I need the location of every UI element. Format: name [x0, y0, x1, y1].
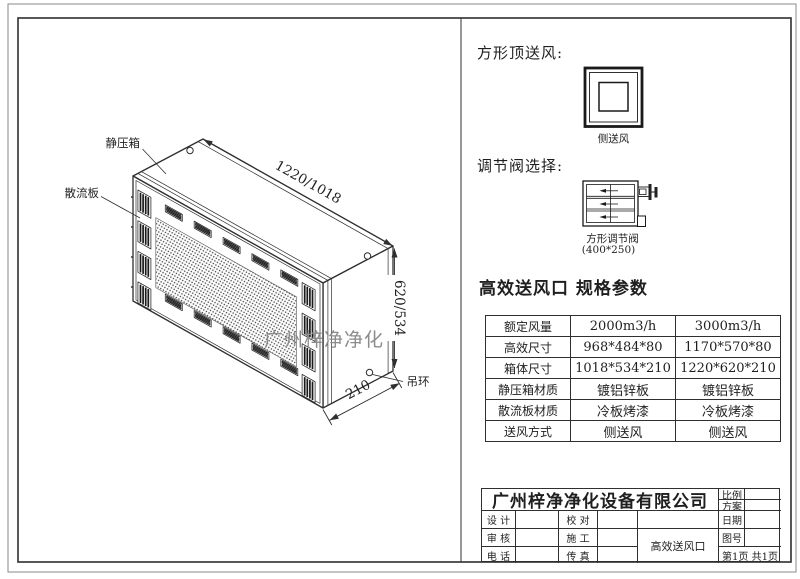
damper-valve-diagram	[583, 181, 658, 227]
audit-label: 审 核	[482, 529, 516, 547]
caption-valve-size: (400*250)	[566, 244, 651, 256]
dim-text-height: 620/534	[391, 280, 407, 336]
valve-handle	[638, 184, 658, 200]
table-row: 静压箱材质 镀铝锌板 镀铝锌板	[486, 379, 781, 400]
drawing-sheet: 广州梓净净化 1220/1018 620/534 210 静压箱 散流板 吊环	[0, 0, 800, 579]
spec-value: 镀铝锌板	[571, 379, 676, 400]
fax-label: 传 真	[559, 547, 598, 563]
label-diffuser-plate: 散流板	[65, 186, 100, 200]
design-label: 设 计	[482, 511, 516, 529]
table-row: 散流板材质 冷板烤漆 冷板烤漆	[486, 400, 781, 421]
spec-value: 968*484*80	[571, 337, 676, 358]
heading-spec: 高效送风口 规格参数	[479, 274, 648, 299]
spec-value: 侧送风	[676, 421, 781, 442]
construct-value	[598, 529, 638, 547]
construct-label: 施 工	[559, 529, 598, 547]
table-row: 送风方式 侧送风 侧送风	[486, 421, 781, 442]
label-lifting-ring: 吊环	[407, 375, 430, 389]
drawing-no-value	[745, 529, 781, 547]
phone-value	[516, 547, 559, 563]
spec-label: 额定风量	[486, 316, 571, 337]
heading-top-supply: 方形顶送风:	[477, 42, 563, 63]
middle-empty-cell	[638, 511, 719, 529]
caption-side-supply: 侧送风	[585, 131, 642, 146]
spec-value: 镀铝锌板	[676, 379, 781, 400]
lifting-ring-back-right	[364, 253, 370, 259]
date-label: 日期	[719, 511, 745, 529]
spec-value: 侧送风	[571, 421, 676, 442]
audit-value	[516, 529, 559, 547]
title-block: 广州梓净净化设备有限公司 比例 方案 设 计 校 对 日期 审 核 施 工 高效…	[481, 488, 780, 562]
table-row: 箱体尺寸 1018*534*210 1220*620*210	[486, 358, 781, 379]
fax-value	[598, 547, 638, 563]
date-value	[745, 511, 781, 529]
isometric-box: 广州梓净净化	[131, 139, 393, 408]
plan-label: 方案	[719, 500, 745, 511]
check-label: 校 对	[559, 511, 598, 529]
table-row: 额定风量 2000m3/h 3000m3/h	[486, 316, 781, 337]
spec-value: 2000m3/h	[571, 316, 676, 337]
spec-value: 1018*534*210	[571, 358, 676, 379]
spec-value: 1220*620*210	[676, 358, 781, 379]
table-row: 高效尺寸 968*484*80 1170*570*80	[486, 337, 781, 358]
spec-value: 1170*570*80	[676, 337, 781, 358]
square-outlet-diagram	[585, 68, 642, 127]
phone-label: 电 话	[482, 547, 516, 563]
spec-value: 冷板烤漆	[676, 400, 781, 421]
spec-label: 高效尺寸	[486, 337, 571, 358]
heading-valve-select: 调节阀选择:	[477, 155, 563, 176]
spec-label: 散流板材质	[486, 400, 571, 421]
spec-value: 3000m3/h	[676, 316, 781, 337]
ext-line-depth-1	[323, 410, 332, 426]
check-value	[598, 511, 638, 529]
label-static-pressure-box: 静压箱	[106, 136, 141, 150]
lifting-ring-back-left	[187, 147, 193, 153]
watermark-text: 广州梓净净化	[264, 329, 384, 351]
valve-bottom-tab	[638, 216, 646, 227]
spec-value: 冷板烤漆	[571, 400, 676, 421]
product-name: 高效送风口	[638, 529, 719, 563]
scale-label: 比例	[719, 489, 745, 500]
page-info: 第1页 共1页	[719, 547, 781, 563]
plan-value	[745, 500, 781, 511]
lifting-ring-bottom-right	[366, 369, 372, 375]
design-value	[516, 511, 559, 529]
spec-label: 送风方式	[486, 421, 571, 442]
spec-label: 静压箱材质	[486, 379, 571, 400]
spec-label: 箱体尺寸	[486, 358, 571, 379]
drawing-no-label: 图号	[719, 529, 745, 547]
spec-table: 额定风量 2000m3/h 3000m3/h 高效尺寸 968*484*80 1…	[485, 315, 781, 442]
company-name: 广州梓净净化设备有限公司	[482, 489, 719, 511]
scale-value	[745, 489, 781, 500]
